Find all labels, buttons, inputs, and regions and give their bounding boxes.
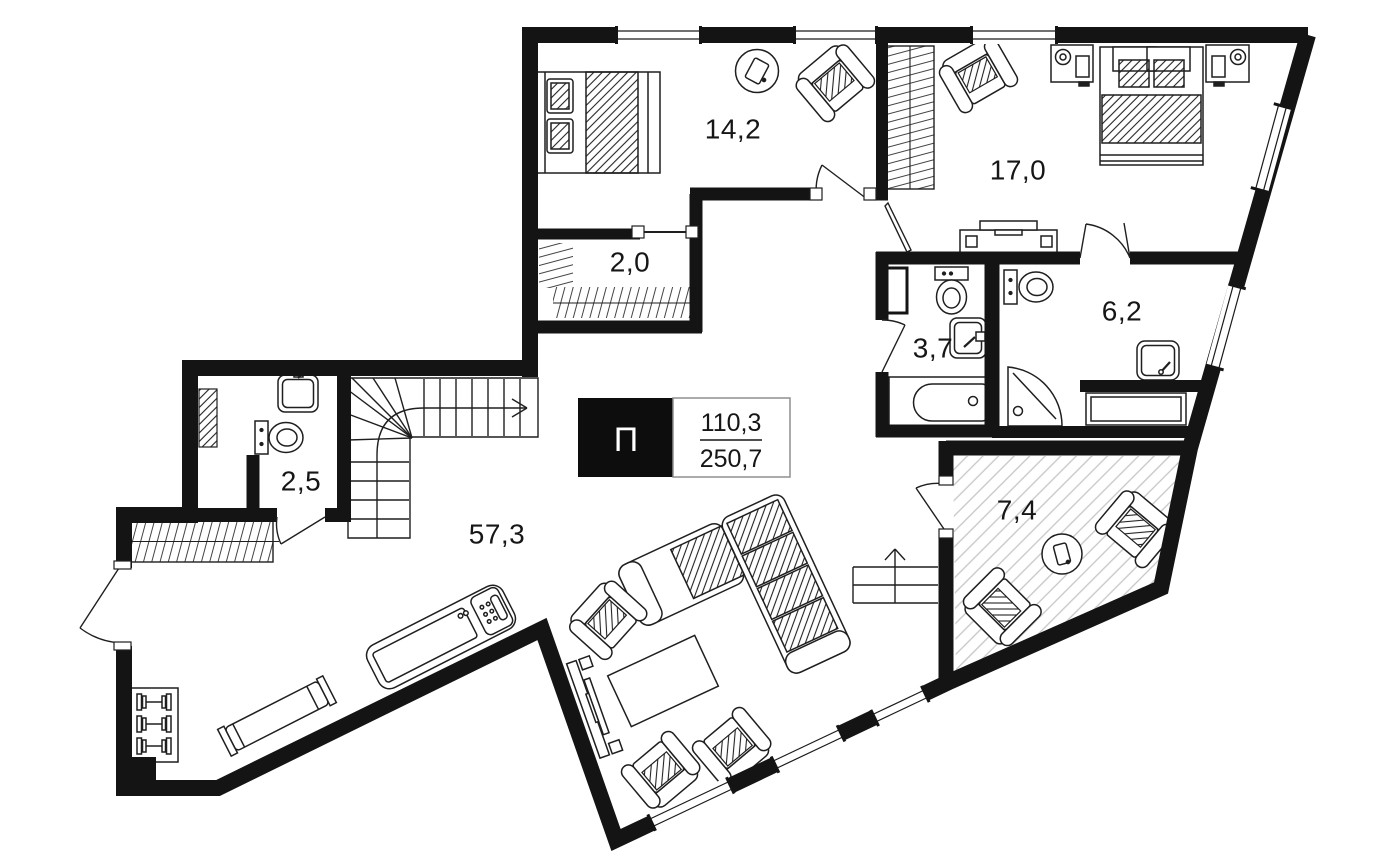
- room-label-bathroom2: 6,2: [1102, 296, 1142, 327]
- wardrobe-icon-bedroom2: [887, 46, 934, 189]
- room-label-bedroom2: 17,0: [990, 155, 1047, 186]
- shaft-hatch: [199, 389, 217, 447]
- dumbbell-rack-icon: [130, 688, 178, 762]
- room-label-wc: 2,5: [281, 466, 321, 497]
- area-summary-box: П 110,3 250,7: [578, 398, 790, 477]
- window-top-3: [970, 26, 1058, 44]
- room-label-living: 57,3: [469, 519, 526, 550]
- window-top-1: [615, 26, 702, 44]
- rug-icon: [736, 50, 779, 93]
- room-label-terrace: 7,4: [997, 495, 1037, 526]
- unit-type-letter: П: [614, 421, 638, 459]
- floorplan-page: 14,2 17,0 2,0 3,7 6,2 2,5 57,3 7,4 П 110…: [0, 0, 1379, 859]
- window-top-2: [793, 26, 878, 44]
- coat-rack-icon: [122, 521, 279, 562]
- floor-plan-svg: 14,2 17,0 2,0 3,7 6,2 2,5 57,3 7,4 П 110…: [0, 0, 1379, 859]
- bed-icon-bedroom1: [537, 72, 660, 173]
- area-value-upper: 110,3: [701, 409, 762, 437]
- area-value-lower: 250,7: [700, 445, 763, 473]
- room-label-bathroom1: 3,7: [913, 333, 953, 364]
- terrace-table-icon: [1042, 534, 1082, 574]
- room-label-bedroom1: 14,2: [705, 114, 762, 145]
- room-label-closet: 2,0: [610, 247, 650, 278]
